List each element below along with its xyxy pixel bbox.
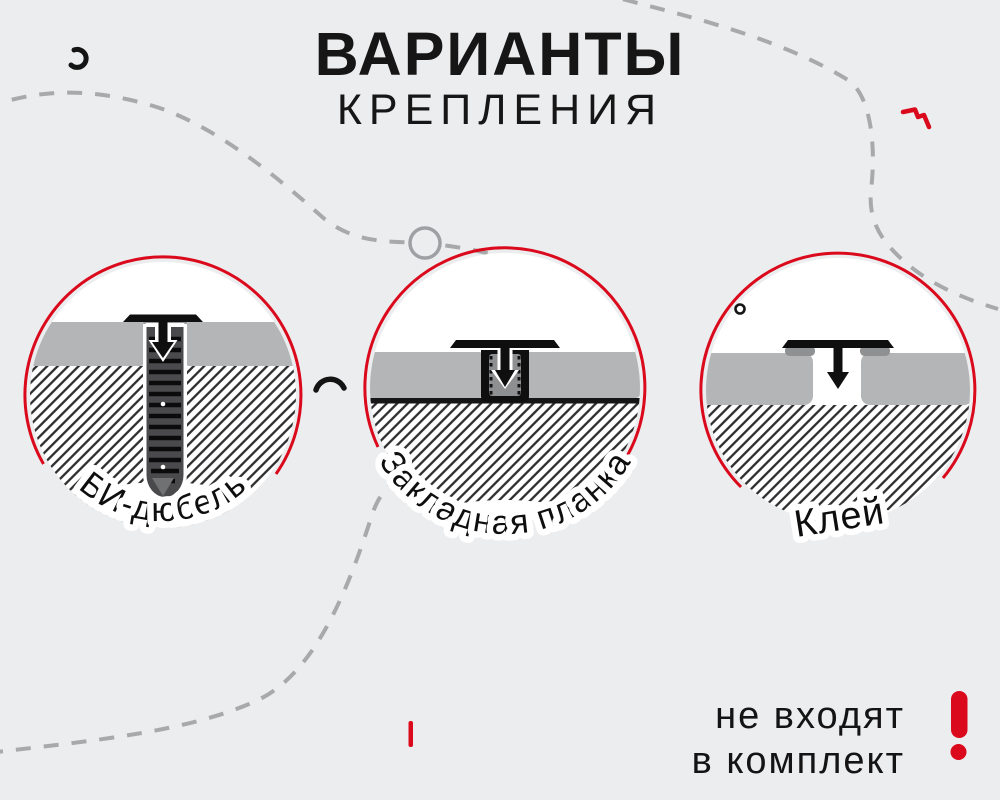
infographic-canvas: ВАРИАНТЫ КРЕПЛЕНИЯ [0,0,1000,800]
panel-left [701,353,813,405]
variant-circle-embedded-plank: Закладная планка [330,248,680,690]
mounting-options-artwork: БИ-дюбель [0,0,1000,800]
squiggle-icon [903,110,929,128]
ring-icon [410,228,440,258]
not-included-note: не входят в комплект [692,694,905,784]
profile-cap [123,315,203,323]
exclamation-icon [951,691,968,760]
dowel-dot [161,465,166,470]
red-dash-icon [409,721,414,747]
panel-right [861,353,973,405]
dashed-curve-top-right [596,0,998,309]
arc-icon [316,379,344,390]
dowel-dot [161,402,166,407]
note-line-2: в комплект [692,739,905,784]
curl-icon [71,49,86,67]
panel-right [523,352,640,398]
panel-left [366,352,483,398]
profile-cap [782,340,894,348]
variant-circle-bi-dowel: БИ-дюбель [0,257,331,674]
note-line-1: не входят [692,694,905,739]
panel-left [18,322,146,366]
profile-cap [450,340,560,348]
variant-circle-glue: Клей [670,253,1000,690]
